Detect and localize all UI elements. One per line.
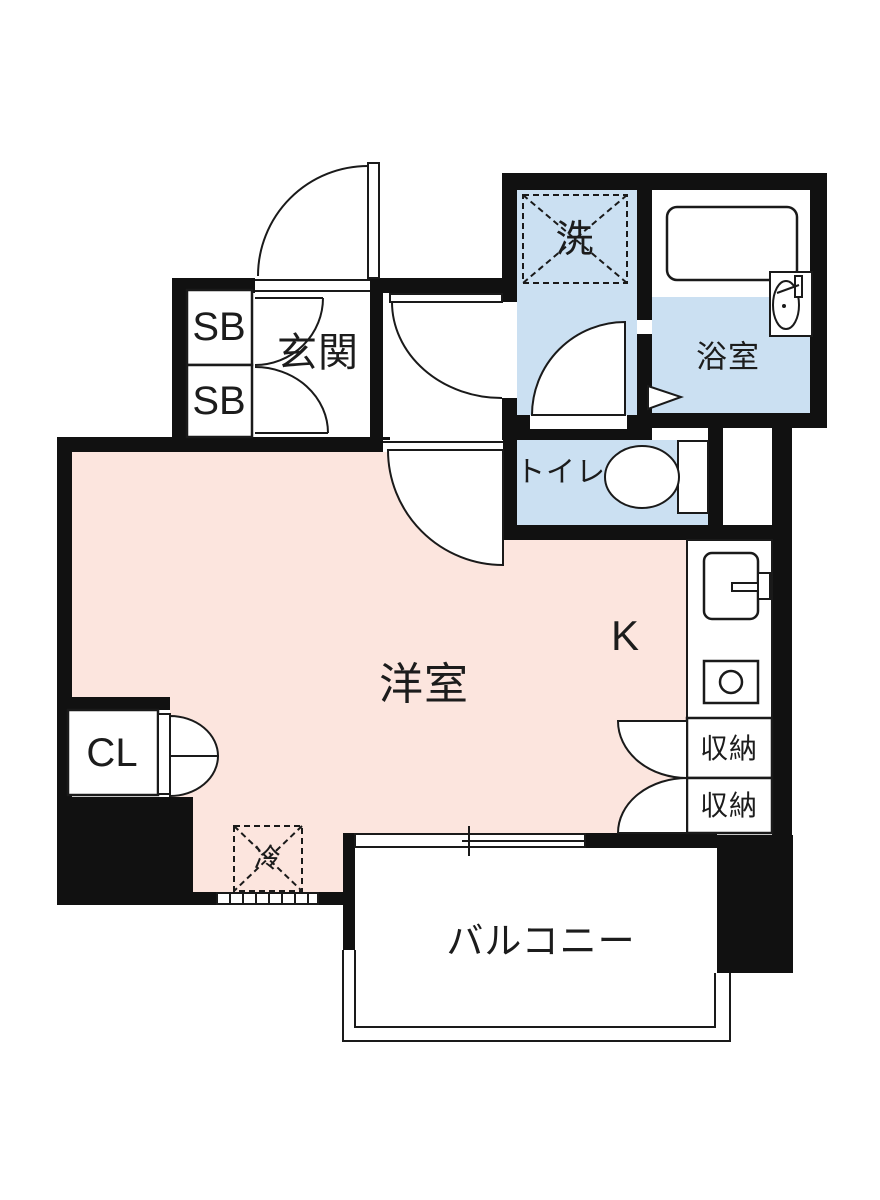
wall-right bbox=[772, 428, 792, 837]
wall-toilet-right bbox=[708, 428, 723, 525]
washer-door-opening-bottom bbox=[530, 415, 627, 429]
bathtub bbox=[667, 207, 797, 280]
floor-plan-drawing bbox=[0, 0, 880, 1200]
washer-door-opening-left bbox=[502, 302, 517, 398]
floor-plan: 玄関 SB SB 洗 浴室 トイレ 洋室 K 収納 収納 CL 冷 バルコニー bbox=[0, 0, 880, 1200]
toilet-bowl bbox=[605, 446, 679, 508]
entry-door-arc bbox=[258, 166, 368, 276]
wall-balcony-left-pier bbox=[343, 833, 355, 950]
wall-bath-bottom bbox=[637, 413, 827, 428]
label-closet: CL bbox=[86, 733, 137, 773]
entry-door-leaf bbox=[368, 163, 379, 278]
label-western-room: 洋室 bbox=[379, 663, 469, 707]
label-storage-top: 収納 bbox=[700, 735, 758, 763]
label-shoe-box-top: SB bbox=[192, 307, 245, 347]
label-bathroom: 浴室 bbox=[696, 342, 760, 373]
label-shoe-box-bottom: SB bbox=[192, 381, 245, 421]
label-storage-bottom: 収納 bbox=[700, 792, 758, 820]
wall-room-top bbox=[57, 437, 390, 452]
wall-bottom-left-mass bbox=[57, 797, 193, 905]
washer-hall-door-arc bbox=[392, 302, 502, 398]
label-toilet: トイレ bbox=[516, 459, 606, 488]
wall-toilet-bottom bbox=[502, 525, 792, 540]
label-entrance: 玄関 bbox=[277, 333, 359, 373]
louver-window bbox=[217, 893, 318, 904]
label-refrigerator: 冷 bbox=[254, 846, 282, 873]
wall-above-closet bbox=[57, 697, 170, 710]
stove-burner bbox=[720, 671, 742, 693]
wall-entrance-right bbox=[370, 293, 383, 443]
washer-hall-door-leaf bbox=[390, 294, 502, 302]
bath-door-opening bbox=[637, 320, 652, 334]
label-balcony: バルコニー bbox=[446, 923, 635, 960]
shoe-box-door-arc-bottom bbox=[255, 367, 328, 433]
wall-right-of-slider bbox=[585, 833, 717, 848]
kitchen-faucet-base bbox=[758, 573, 770, 599]
label-kitchen: K bbox=[611, 615, 639, 657]
toilet-tank bbox=[678, 441, 708, 513]
wall-bottom-right-mass bbox=[717, 835, 793, 973]
wall-top bbox=[502, 173, 827, 190]
balcony-inner-outline bbox=[355, 950, 715, 1027]
wall-washer-bath-divider bbox=[637, 190, 652, 415]
closet-door-leaf bbox=[158, 714, 170, 794]
bath-sink-drain bbox=[782, 304, 786, 308]
wall-entrance-left bbox=[172, 293, 187, 452]
label-washer: 洗 bbox=[555, 221, 594, 259]
